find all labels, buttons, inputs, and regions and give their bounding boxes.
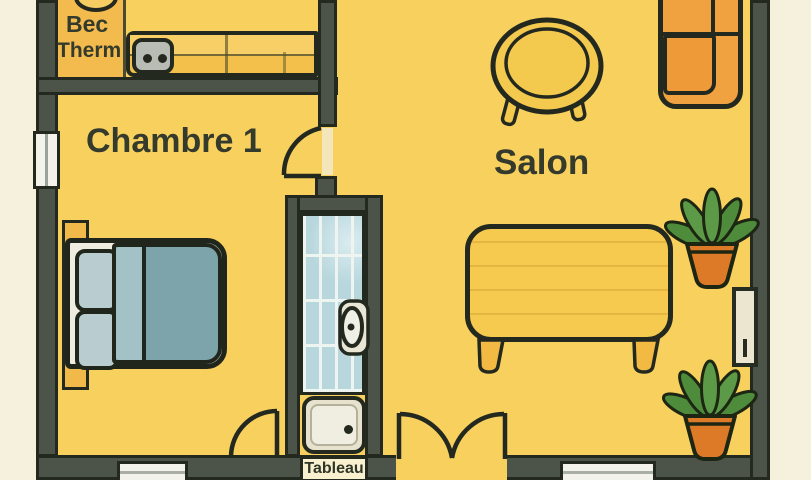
sofa-icon bbox=[465, 224, 673, 342]
wall-left bbox=[36, 0, 58, 457]
counter-divider bbox=[225, 35, 228, 73]
sectional-sofa-icon bbox=[658, 0, 743, 109]
window-mullion bbox=[45, 134, 48, 186]
floor-plan: Tableau bbox=[0, 0, 811, 480]
wall-bedroom-living bbox=[318, 0, 337, 127]
panel-handle bbox=[743, 339, 747, 357]
living-room-label: Salon bbox=[494, 143, 589, 183]
window-sill bbox=[120, 471, 185, 474]
power-outlet-icon bbox=[132, 38, 174, 74]
wall-panel-icon bbox=[732, 287, 758, 367]
electrical-panel-label: Tableau bbox=[304, 460, 363, 478]
bed-blanket bbox=[112, 243, 222, 364]
wall-bathroom-right bbox=[365, 195, 383, 457]
shower-tray-icon bbox=[302, 396, 366, 454]
wall-right bbox=[750, 0, 770, 480]
counter-divider bbox=[283, 52, 286, 73]
double-bed-icon bbox=[65, 238, 227, 369]
drain-icon bbox=[344, 425, 353, 434]
outlet-pin bbox=[143, 54, 152, 63]
kitchen-label-therm: Therm bbox=[57, 39, 121, 63]
wall-kitchen-bedroom bbox=[36, 77, 338, 95]
bathroom-tiles bbox=[300, 213, 365, 395]
window-icon bbox=[117, 461, 188, 480]
electrical-panel-label-box: Tableau bbox=[300, 456, 368, 480]
bedroom-label: Chambre 1 bbox=[86, 122, 262, 161]
sofa-cushion bbox=[663, 34, 716, 95]
blanket-fold bbox=[116, 247, 146, 360]
window-sill bbox=[563, 471, 653, 474]
window-icon bbox=[560, 461, 656, 480]
outlet-pin bbox=[158, 54, 167, 63]
kitchen-label-bec: Bec bbox=[66, 11, 108, 38]
wall-bathroom-left bbox=[285, 195, 300, 457]
window-icon bbox=[33, 131, 60, 189]
